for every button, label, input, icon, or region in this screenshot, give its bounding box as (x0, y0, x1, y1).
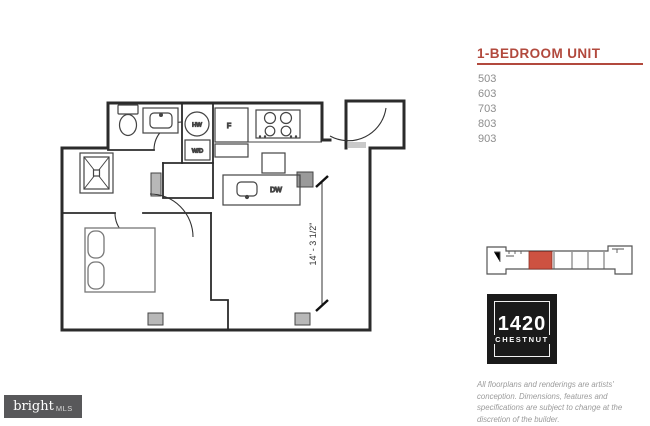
dimension-label: 14' - 3 1/2" (308, 223, 318, 266)
title-underline (477, 63, 643, 65)
shower (80, 153, 113, 193)
island-sink (237, 182, 257, 196)
pantry-box (262, 153, 285, 173)
building-outline (487, 246, 632, 274)
interior-walls (62, 103, 228, 330)
column (148, 313, 163, 325)
brand-name: bright (13, 399, 54, 414)
utility-closet: HW W/D (185, 112, 210, 160)
column (297, 172, 313, 187)
stove-knobs (259, 135, 297, 137)
building-logo: 1420 CHESTNUT (487, 294, 557, 364)
pillow (88, 231, 104, 258)
dw-label: DW (270, 187, 282, 194)
unit-number-list: 503 603 703 803 903 (478, 72, 496, 147)
unit-number: 703 (478, 102, 496, 117)
column (151, 173, 161, 196)
entry-door-arc (330, 108, 386, 141)
pillow (88, 262, 104, 289)
brightmls-logo: bright MLS (4, 395, 82, 418)
kitchen: F DW (215, 108, 322, 205)
unit-number: 803 (478, 117, 496, 132)
bedroom-furniture (85, 228, 155, 292)
logo-number: 1420 (496, 314, 549, 335)
hw-label: HW (192, 123, 202, 129)
closet-door-arc (150, 194, 193, 237)
fridge-label: F (227, 123, 231, 130)
columns (148, 142, 366, 325)
unit-number: 603 (478, 87, 496, 102)
unit-number: 903 (478, 132, 496, 147)
burners (265, 113, 292, 136)
toilet-tank (118, 105, 138, 114)
exterior-walls (62, 101, 404, 330)
building-keyplan (484, 240, 642, 282)
page-title: 1-BEDROOM UNIT (477, 46, 600, 61)
floorplan-drawing: HW W/D F DW 14' - 3 1/2" (55, 88, 415, 338)
entry-step (348, 142, 366, 148)
logo-street: CHESTNUT (493, 335, 551, 344)
brand-suffix: MLS (56, 404, 73, 413)
refrigerator (215, 108, 248, 142)
counter-shelf (215, 144, 248, 157)
highlighted-unit (529, 252, 552, 270)
bathroom-fixtures (118, 105, 178, 136)
column (295, 313, 310, 325)
island-faucet (246, 196, 249, 199)
disclaimer-text: All floorplans and renderings are artist… (477, 379, 649, 426)
stove (256, 110, 300, 138)
island (223, 175, 300, 205)
unit-number: 503 (478, 72, 496, 87)
wd-label: W/D (192, 149, 203, 155)
faucet (160, 114, 163, 117)
toilet-bowl (120, 115, 137, 136)
dimension: 14' - 3 1/2" (308, 176, 328, 311)
